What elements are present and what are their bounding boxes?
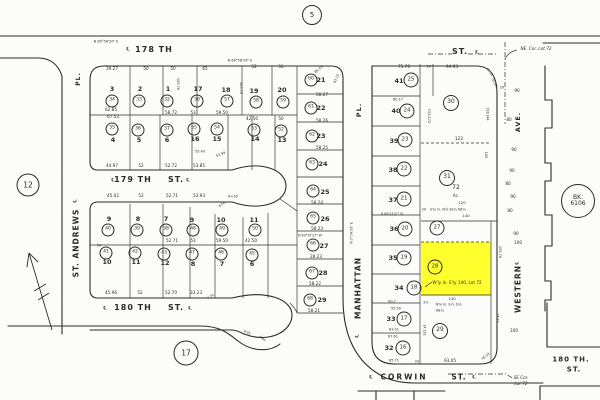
parcel-circle: 30 (443, 95, 459, 111)
parcel-circle: 60 (305, 74, 318, 87)
street-label: AVE. (515, 112, 522, 133)
centerline-symbol: ℄ (103, 307, 106, 312)
dimension-text: 55.42 (490, 78, 497, 88)
parcel-circle: 49 (216, 224, 229, 237)
dimension-text: 150 (483, 152, 487, 159)
lot-number: 7 (220, 261, 225, 268)
lot-number: 18 (221, 87, 230, 94)
parcel-circle: 52 (275, 125, 288, 138)
dimension-text: 140 (462, 214, 469, 218)
parcel-circle: 53 (248, 124, 261, 137)
parcel-circle: 39 (131, 224, 144, 237)
street-label: ST. (452, 48, 468, 56)
lot-number: 24 (318, 161, 327, 168)
centerline-symbol: ℄ (74, 199, 79, 202)
dimension-text: 62.85 (105, 108, 117, 112)
lot-number: 17 (193, 86, 202, 93)
dimension-text: 7.30 (207, 294, 215, 301)
dimension-text: N 89°55'27" W (298, 234, 322, 237)
parcel-circle: 55 (188, 123, 201, 136)
dimension-text: Ac. (453, 194, 459, 198)
centerline-symbol: ℄ (472, 376, 475, 381)
parcel-circle: 32 (161, 95, 174, 108)
dimension-text: 53.99 (216, 152, 226, 159)
parcel-circle: 50 (249, 224, 262, 237)
centerline-symbol: ℄ (475, 51, 478, 56)
parcel-circle: 67 (306, 267, 319, 280)
dimension-text: N'ly ln. S½, S½, (436, 303, 463, 306)
centerline-symbol: ℄ (111, 179, 114, 184)
centerline-symbol: ℄ (356, 334, 361, 337)
dimension-text: 53 (190, 111, 195, 115)
dimension-text: 53 (190, 239, 195, 243)
dimension-text: 80.17 (393, 98, 403, 102)
dimension-text: 52.72 (165, 164, 177, 168)
dimension-text: 94.93 (446, 65, 458, 69)
parcel-circle: 61 (305, 102, 318, 115)
lot-number: 8 (191, 261, 196, 268)
parcel-circle: 41 (100, 247, 113, 260)
lot-number: 27 (319, 243, 328, 250)
street-label: 180 TH (114, 304, 152, 312)
parcel-circle: 40 (102, 224, 115, 237)
parcel-circle: 37 (161, 124, 174, 137)
lot-number: 19 (249, 88, 258, 95)
lot-number: 13 (277, 137, 286, 144)
lot-number: 12 (160, 260, 169, 267)
parcel-circle: 43 (158, 248, 171, 261)
dimension-text: 85.71 (389, 359, 399, 363)
street-label: 180 TH. (552, 357, 589, 364)
parcel-circle: 56 (191, 95, 204, 108)
dimension-text: 58.23 (311, 227, 323, 231)
dimension-text: N 0°04'33" E (350, 222, 353, 244)
parcel-circle: 20 (398, 222, 413, 237)
dimension-text: 50 (97, 244, 101, 248)
parcel-circle: 62 (306, 130, 319, 143)
dimension-text: 52.70 (165, 291, 177, 295)
dimension-text: 153.272 (426, 109, 430, 123)
lot-number: 8 (136, 216, 141, 223)
dimension-text: 65.25 (314, 66, 324, 75)
parcel-circle: 45 (246, 249, 259, 262)
parcel-circle: 21 (397, 192, 412, 207)
dimension-text: 52.71 (166, 239, 178, 243)
lot-number: 9 (190, 217, 195, 224)
dimension-text: 50 (278, 117, 283, 121)
dimension-text: 44.97 (106, 164, 118, 168)
dimension-text: 105.76 (238, 82, 242, 94)
parcel-circle: 28 (428, 260, 443, 275)
dimension-text: 72 (452, 185, 460, 191)
parcel-circle: 23 (398, 133, 413, 148)
parcel-circle: 64 (307, 185, 320, 198)
lot-number: 11 (249, 217, 258, 224)
plat-map: 178 THST.179 THST.180 THST.CORWINST.ST. … (0, 0, 600, 400)
lot-number: 41 (394, 78, 403, 85)
centerline-symbol: ℄ (369, 376, 372, 381)
dimension-text: 140 (448, 297, 455, 301)
lot-number: 4 (111, 137, 116, 144)
dimension-text: 58.72 (165, 111, 177, 115)
dimension-text: 52 (251, 65, 256, 69)
dimension-text: 80 (507, 209, 512, 213)
dimension-text: 80 (506, 118, 511, 122)
lot-number: 5 (137, 137, 142, 144)
centerline-symbol: ℄ (516, 261, 521, 264)
parcel-circle: 57 (221, 95, 234, 108)
lot-number: 10 (102, 259, 111, 266)
lot-number: 7 (164, 216, 169, 223)
dimension-text: 52 (137, 291, 142, 295)
parcel-circle: 54 (211, 123, 224, 136)
centerline-symbol: ℄ (186, 179, 189, 184)
parcel-circle: 58 (250, 96, 263, 109)
dimension-text: 105.76 (175, 78, 179, 90)
dimension-text: 128.244 (485, 107, 488, 120)
lot-number: 22 (316, 105, 325, 112)
dimension-text: 93.05 (444, 359, 456, 363)
parcel-circle: 18 (407, 281, 422, 296)
parcel-circle: 31 (439, 170, 455, 186)
dimension-text: 83.01 (389, 328, 399, 332)
parcel-circle: 68 (304, 294, 317, 307)
lot-number: 11 (131, 259, 140, 266)
dimension-text: 33.23 (190, 291, 202, 295)
dimension-text: 20 (415, 360, 419, 364)
dimension-text: R=50 (228, 195, 238, 198)
dimension-text: N 89°53'27" W (381, 213, 403, 216)
dimension-text: 90.7 (388, 300, 396, 304)
dimension-text: 52.71 (166, 194, 178, 198)
dimension-text: 45.02 (107, 194, 119, 198)
parcel-circle: 42 (129, 247, 142, 260)
parcel-circle: 38 (160, 224, 173, 237)
dimension-text: 90 (511, 148, 516, 152)
lot-number: 20 (277, 87, 286, 94)
lot-number: 29 (317, 297, 326, 304)
dimension-text: 59.50 (216, 111, 228, 115)
dimension-text: 20 (422, 208, 426, 212)
dimension-text: 20 (427, 65, 431, 69)
dimension-text: 39.27 (106, 67, 118, 71)
parcel-circle: 63 (306, 158, 319, 171)
dimension-text: 14.192 (422, 324, 425, 335)
parcel-circle: 47 (186, 248, 199, 261)
dimension-text: 75.70 (398, 65, 410, 69)
dimension-text: 55.40 (195, 150, 205, 154)
lot-number: 2 (138, 86, 143, 93)
dimension-text: 16.42 (495, 313, 498, 322)
street-label: ST. (168, 304, 184, 312)
street-label: ST. (168, 176, 184, 184)
dimension-text: 42.50 (245, 239, 257, 243)
dimension-text: 67.53 (107, 115, 119, 119)
dimension-text: N 89°58'20" E (94, 40, 119, 44)
parcel-circle: 46 (215, 248, 228, 261)
lot-number: 32 (384, 345, 393, 352)
dimension-text: 52 (138, 164, 143, 168)
lot-number: 10 (216, 217, 225, 224)
street-label: ST. ANDREWS (72, 209, 80, 278)
parcel-circle: 29 (432, 323, 448, 339)
lot-number: 6 (250, 261, 255, 268)
dimension-text: 90 (510, 195, 515, 199)
lot-number: 9 (107, 216, 112, 223)
dimension-text: 80 (505, 182, 510, 186)
dimension-text: 8.84 (258, 335, 266, 342)
dimension-text: 53.85 (193, 164, 205, 168)
dimension-text: NE¼ (436, 309, 444, 312)
street-label: WESTERN (514, 265, 522, 313)
lot-number: 21 (316, 77, 325, 84)
parcel-circle: 59 (277, 96, 290, 109)
dimension-text: 58.25 (316, 146, 328, 150)
dimension-text: 52 (138, 194, 143, 198)
dimension-text: 42.50 (246, 117, 258, 121)
parcel-circle: 33 (133, 95, 146, 108)
dimension-text: 9.05 (243, 330, 251, 336)
street-label: MANHATTAN (354, 257, 362, 319)
map-reference-circle: 17 (174, 341, 199, 366)
dimension-text: 90 (513, 232, 518, 236)
dimension-text: 155.76 (497, 246, 501, 258)
street-label: ST. (567, 367, 581, 374)
map-reference-circle: 12 (17, 174, 40, 197)
centerline-symbol: ℄ (126, 48, 129, 53)
street-label: PL. (356, 103, 363, 117)
dimension-text: S'ly ln. N½ SE¼ NE¼ (430, 208, 466, 211)
dimension-text: 28.23 (310, 255, 322, 259)
centerline-symbol: ℄ (188, 307, 191, 312)
dimension-text: 20. (423, 301, 429, 305)
lot-number: 34 (394, 285, 403, 292)
lot-number: 33 (386, 316, 395, 323)
parcel-circle: 25 (404, 73, 419, 88)
street-label: 179 TH (114, 176, 152, 184)
dimension-text: 65 (202, 67, 207, 71)
parcel-circle: 27 (430, 221, 445, 236)
lot-number: 25 (320, 189, 329, 196)
dimension-text: 58.21 (308, 309, 320, 313)
parcel-circle: 66 (307, 239, 320, 252)
dimension-text: 56 (278, 65, 283, 69)
parcel-circle: 34 (106, 95, 119, 108)
lot-number: 15 (212, 136, 221, 143)
parcel-circle: 65 (307, 212, 320, 225)
dimension-text: 100 (510, 329, 518, 333)
lot-number: 3 (110, 86, 115, 93)
dimension-text: 50 (143, 67, 148, 71)
corner-note: NE. Cor. Lot 72 (520, 47, 551, 51)
dimension-text: 20 (500, 86, 504, 90)
map-reference-circle: BK. 6106 (561, 184, 595, 218)
dimension-text: 58.22 (309, 282, 321, 286)
street-label: ST. (451, 373, 466, 381)
parcel-circle: 36 (132, 124, 145, 137)
lot-number: 26 (320, 216, 329, 223)
parcel-circle: 48 (187, 224, 200, 237)
dimension-text: 58.27 (316, 93, 328, 97)
lot-number: 16 (190, 136, 199, 143)
dimension-text: 58.26 (316, 119, 328, 123)
parcel-circle: 16 (396, 341, 411, 356)
dimension-text: 58.24 (311, 201, 323, 205)
dimension-text: N 89°58'20" E (228, 59, 253, 63)
dimension-text: 43.15 (333, 74, 340, 84)
street-label: PL. (76, 72, 82, 86)
dimension-text: 8.54 (218, 202, 226, 209)
dimension-text: 50 (170, 67, 175, 71)
dimension-text: 120 (458, 201, 465, 205)
dimension-text: W'ly ln. E'ly 140, Lot 72 (432, 281, 481, 285)
parcel-circle: 24 (400, 104, 415, 119)
map-labels: 178 THST.179 THST.180 THST.CORWINST.ST. … (0, 0, 600, 400)
parcel-circle: 17 (397, 312, 412, 327)
dimension-text: 45.18 (485, 67, 493, 76)
lot-number: 1 (166, 86, 171, 93)
corner-note: SE Cor. (514, 376, 529, 380)
dimension-text: 59.50 (216, 239, 228, 243)
dimension-text: 53.93 (193, 194, 205, 198)
parcel-circle: 19 (397, 251, 412, 266)
lot-number: 14 (250, 136, 259, 143)
dimension-text: 90 (509, 169, 514, 173)
parcel-circle: 35 (106, 123, 119, 136)
dimension-text: 55.50 (391, 307, 401, 311)
dimension-text: 90 (514, 89, 519, 93)
street-label: 178 TH (135, 46, 173, 54)
lot-number: 28 (318, 270, 327, 277)
map-reference-circle: 5 (302, 5, 322, 25)
dimension-text: 100 (514, 241, 522, 245)
dimension-text: 76.03 (481, 353, 491, 362)
lot-number: 6 (165, 137, 170, 144)
dimension-text: 67.61 (388, 335, 398, 339)
street-label: CORWIN (381, 373, 428, 381)
dimension-text: 122 (455, 137, 463, 141)
dimension-text: 45.96 (105, 291, 117, 295)
parcel-circle: 22 (397, 162, 412, 177)
corner-note: Lot 72 (514, 382, 527, 386)
